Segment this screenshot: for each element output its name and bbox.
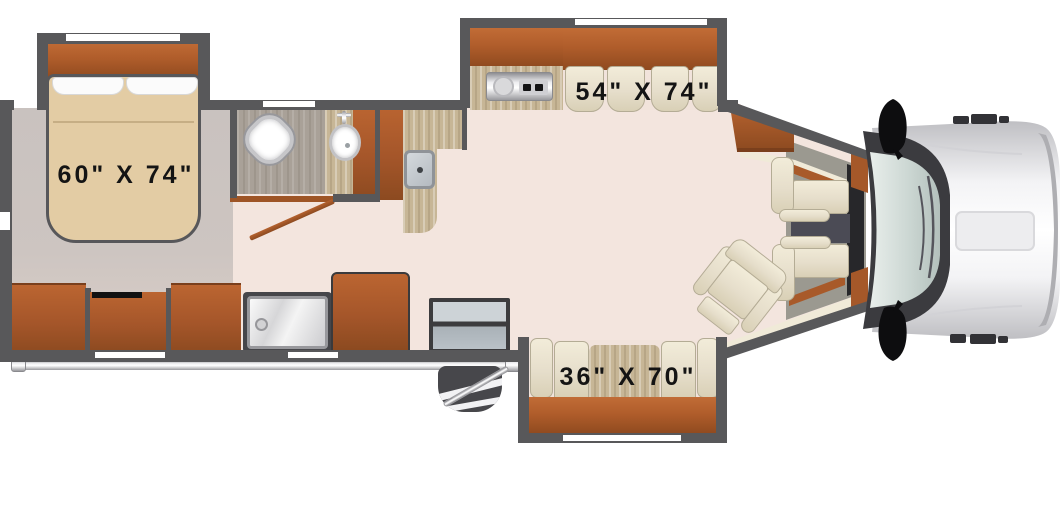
wall-bed-slide-left [37,33,48,110]
cab-cabinet-edge [737,148,794,152]
wall-bath-kitchen [375,103,380,200]
mattress-seam [53,121,194,123]
cooktop-controls [519,80,548,95]
kitchen-cabinet [380,103,403,200]
wall-bed-slide-right [198,33,210,110]
sofa-dimension-label: 36" X 70" [544,363,712,392]
kitchen-sink-icon [404,150,435,189]
rv-floorplan: 60" X 74" [0,0,1063,508]
window-bed-slide-icon [66,34,180,41]
bathroom-door-threshold [230,196,333,202]
seat-armrest-2 [780,236,831,249]
wall-top-a [0,100,14,110]
window-left-icon [0,212,10,230]
wall-bathroom-bottom [333,194,380,202]
bed-dimension-label: 60" X 74" [48,161,204,190]
bathroom-sink-icon [329,124,361,161]
sofa-base [529,397,717,434]
dinette-sofa-back [563,28,717,70]
stove-overhead-cabinet [470,28,563,67]
wardrobe [331,272,410,352]
wall-top-b [208,100,466,110]
pillow-right [126,77,198,95]
sink-drain [345,143,350,148]
shower [243,292,332,353]
windshield-glass [870,152,940,308]
burner-icon [493,76,514,97]
driver-seat-cushion [792,244,849,278]
dresser-1 [3,283,86,354]
wall-kitchen-slide-left [460,18,470,108]
tv-screen [92,292,142,298]
seat-armrest-1 [779,209,830,222]
wall-sofa-slide-right [716,337,727,443]
wall-bathroom-left [230,108,237,198]
cooktop-icon [486,72,553,101]
window-bottom-1-icon [95,352,165,358]
pillow-left [52,77,124,95]
refrigerator-shelves [433,302,506,349]
shower-drain-icon [255,318,268,331]
dresser-2 [171,283,241,354]
wall-bottom [0,350,523,362]
refrigerator [429,298,510,353]
window-bathroom-icon [263,101,315,107]
dinette-dimension-label: 54" X 74" [565,78,723,107]
wall-counter-stub [462,108,467,150]
hood-scoop [956,212,1034,250]
window-bottom-2-icon [288,352,338,358]
window-sofa-slide-icon [563,435,681,441]
faucet-stem [342,111,346,124]
queen-bed [46,74,201,243]
tv-cabinet [90,292,167,352]
window-kitchen-slide-icon [575,19,707,25]
passenger-seat-back [771,157,794,214]
kitchen-sink-drain [417,167,423,173]
wall-sofa-slide-left [518,337,529,443]
